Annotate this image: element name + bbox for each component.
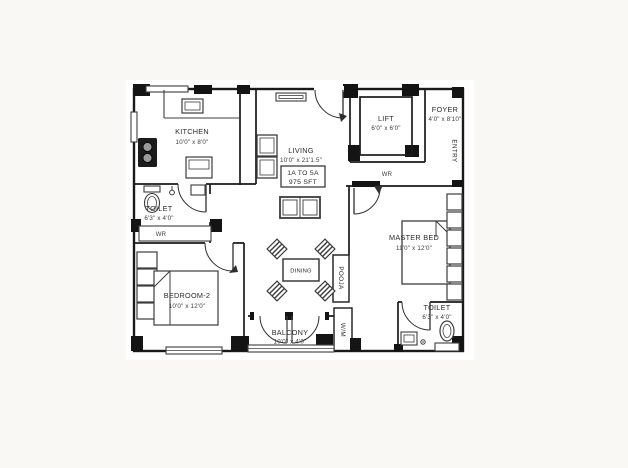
foyer-dims: 4'0" x 8'10"	[429, 116, 462, 123]
living-label: LIVING	[288, 146, 313, 155]
toilet2-dims: 6'3" x 4'0"	[422, 314, 451, 321]
toilet2-sink-icon	[401, 332, 417, 345]
kitchen-left-window	[131, 112, 137, 142]
toilet2-label: TOILET	[424, 303, 451, 312]
living-dims: 10'0" x 21'1.5"	[280, 157, 322, 164]
wr-left-box	[139, 226, 211, 241]
dining-label: DINING	[290, 269, 312, 275]
toilet1-dims: 6'3" x 4'0"	[144, 215, 173, 222]
lift-label: LIFT	[378, 114, 394, 123]
foyer-label: FOYER	[432, 105, 458, 114]
floor-plan-drawing: KITCHEN 10'0" x 8'0" TOILET 6'3" x 4'0" …	[0, 0, 628, 468]
bedroom2-dims: 10'0" x 12'0"	[169, 303, 206, 310]
lift-dims: 6'0" x 6'0"	[371, 125, 400, 132]
balcony-dims: 10'0" x 4'0"	[274, 339, 307, 346]
living-top-shelf	[276, 93, 306, 101]
master-dims: 11'0" x 12'0"	[396, 245, 432, 252]
balcony-label: BALCONY	[272, 328, 309, 337]
master-wardrobe-icon	[447, 194, 462, 210]
bedroom2-wardrobe-icon	[137, 252, 157, 268]
master-bed-icon	[402, 221, 450, 284]
wc2-icon	[440, 321, 454, 341]
master-label: MASTER BED	[389, 233, 439, 242]
unit-area: 975 SFT	[289, 179, 317, 186]
washbasin-icon	[191, 185, 205, 195]
wr1-label: WR	[156, 232, 167, 238]
pooja-label: POOJA	[337, 266, 344, 290]
wc2-base-icon	[435, 343, 459, 351]
unit-range: 1A TO 5A	[287, 170, 319, 177]
entry-label: ENTRY	[451, 139, 458, 163]
floor-plan-page: KITCHEN 10'0" x 8'0" TOILET 6'3" x 4'0" …	[0, 0, 628, 468]
kitchen-top-window	[146, 86, 188, 92]
kitchen-dims: 10'0" x 8'0"	[176, 139, 209, 146]
wm-label: W/M	[339, 323, 346, 337]
wr2-label: WR	[382, 172, 393, 178]
bedroom2-label: BEDROOM-2	[164, 291, 210, 300]
wc-tank-icon	[144, 186, 160, 192]
kitchen-label: KITCHEN	[175, 127, 209, 136]
unit-label-box: 1A TO 5A 975 SFT	[281, 166, 325, 187]
toilet1-label: TOILET	[146, 204, 173, 213]
